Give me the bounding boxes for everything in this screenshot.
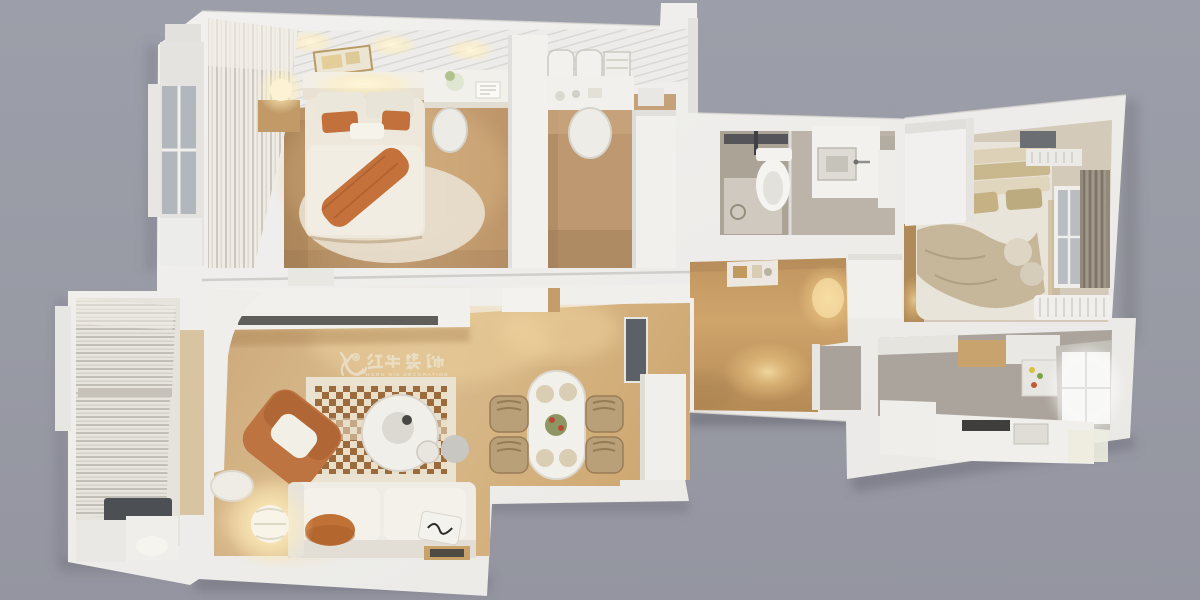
svg-text:HONG NIU DECORATION: HONG NIU DECORATION — [366, 372, 449, 378]
